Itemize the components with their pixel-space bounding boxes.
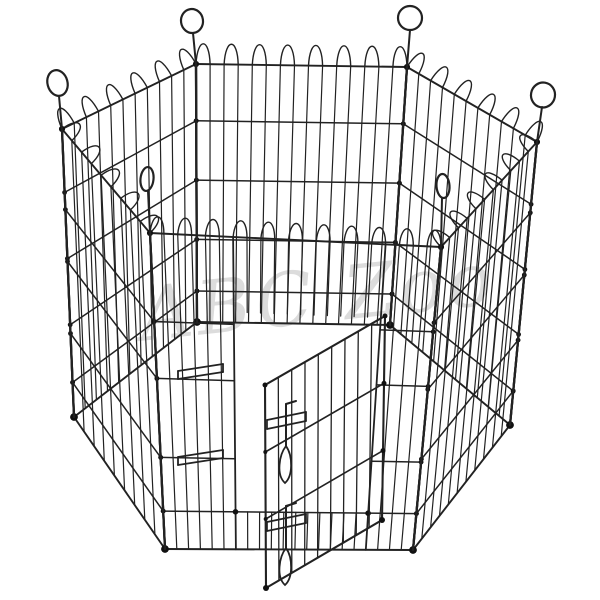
latch-keeper-top <box>178 364 223 379</box>
corner-ring-back-left <box>179 8 204 64</box>
corner-ring-right <box>529 81 557 142</box>
playpen-illustration: ABC Zoo <box>0 0 600 600</box>
corner-ring-back-right <box>398 6 422 67</box>
door-latch-top <box>267 401 306 483</box>
corner-ring-left <box>44 68 70 129</box>
product-photo: ABC Zoo <box>0 0 600 600</box>
